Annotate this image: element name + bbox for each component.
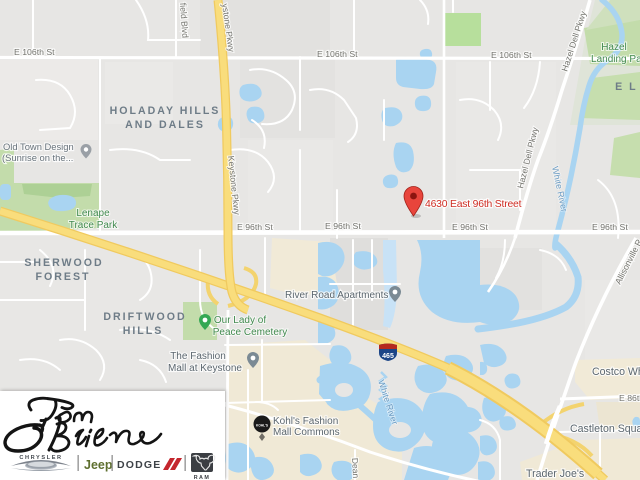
- svg-text:FOREST: FOREST: [36, 271, 91, 283]
- svg-text:SHERWOOD: SHERWOOD: [24, 257, 103, 269]
- svg-text:E 106th St: E 106th St: [14, 47, 55, 57]
- svg-text:E 96th St: E 96th St: [325, 221, 361, 231]
- svg-text:Our Lady of: Our Lady of: [214, 315, 266, 326]
- svg-text:E 106th St: E 106th St: [317, 49, 358, 59]
- svg-text:KOHL'S: KOHL'S: [256, 424, 268, 428]
- svg-text:RAM: RAM: [194, 475, 210, 480]
- svg-text:Kohl's Fashion: Kohl's Fashion: [273, 416, 338, 427]
- svg-text:E 96th St: E 96th St: [237, 222, 273, 232]
- svg-text:Dean: Dean: [350, 458, 361, 479]
- svg-text:Landing Par: Landing Par: [591, 54, 640, 65]
- svg-text:DRIFTWOOD: DRIFTWOOD: [103, 311, 186, 323]
- svg-text:Old Town Design: Old Town Design: [3, 141, 74, 152]
- svg-text:Lenape: Lenape: [76, 208, 110, 219]
- svg-text:E 106th St: E 106th St: [491, 50, 532, 60]
- svg-text:Jeep: Jeep: [84, 458, 113, 472]
- svg-text:Hazel: Hazel: [601, 42, 627, 53]
- svg-text:Trace Park: Trace Park: [69, 220, 119, 231]
- svg-text:Costco Wh: Costco Wh: [592, 366, 640, 378]
- svg-text:AND DALES: AND DALES: [125, 119, 205, 131]
- svg-text:(Sunrise on the...: (Sunrise on the...: [2, 152, 73, 163]
- svg-text:E 96th St: E 96th St: [592, 222, 628, 232]
- svg-text:DODGE: DODGE: [117, 459, 162, 471]
- svg-text:Mall Commons: Mall Commons: [273, 427, 340, 438]
- svg-text:Trader Joe's: Trader Joe's: [526, 468, 584, 480]
- svg-text:Mall at Keystone: Mall at Keystone: [168, 363, 242, 374]
- svg-text:465: 465: [382, 353, 394, 360]
- svg-text:HILLS: HILLS: [123, 325, 164, 337]
- svg-text:Peace Cemetery: Peace Cemetery: [213, 327, 287, 338]
- svg-text:Castleton Squa: Castleton Squa: [570, 423, 640, 435]
- svg-text:HOLADAY HILLS: HOLADAY HILLS: [110, 105, 221, 117]
- svg-text:E 96th St: E 96th St: [452, 222, 488, 232]
- svg-text:E L L: E L L: [615, 81, 640, 93]
- svg-text:The Fashion: The Fashion: [170, 351, 226, 362]
- svg-text:E 86th: E 86th: [619, 393, 640, 403]
- svg-text:River Road Apartments: River Road Apartments: [285, 290, 388, 301]
- svg-text:4630 East 96th Street: 4630 East 96th Street: [425, 199, 522, 210]
